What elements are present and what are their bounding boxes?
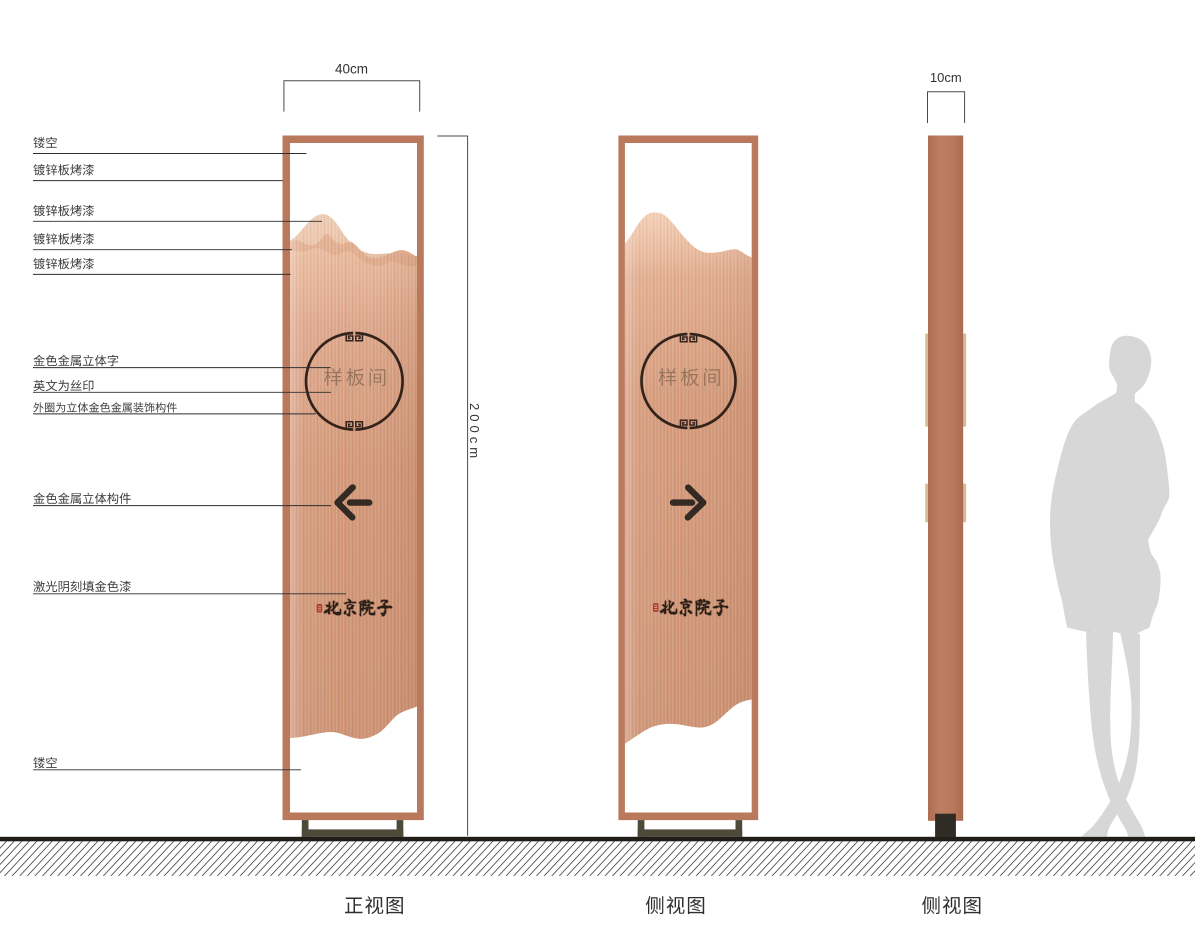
svg-text:40cm: 40cm <box>335 62 368 77</box>
svg-text:MODEL APARTMENT: MODEL APARTMENT <box>655 387 722 393</box>
svg-text:200cm: 200cm <box>467 403 482 462</box>
svg-text:10cm: 10cm <box>930 70 962 85</box>
